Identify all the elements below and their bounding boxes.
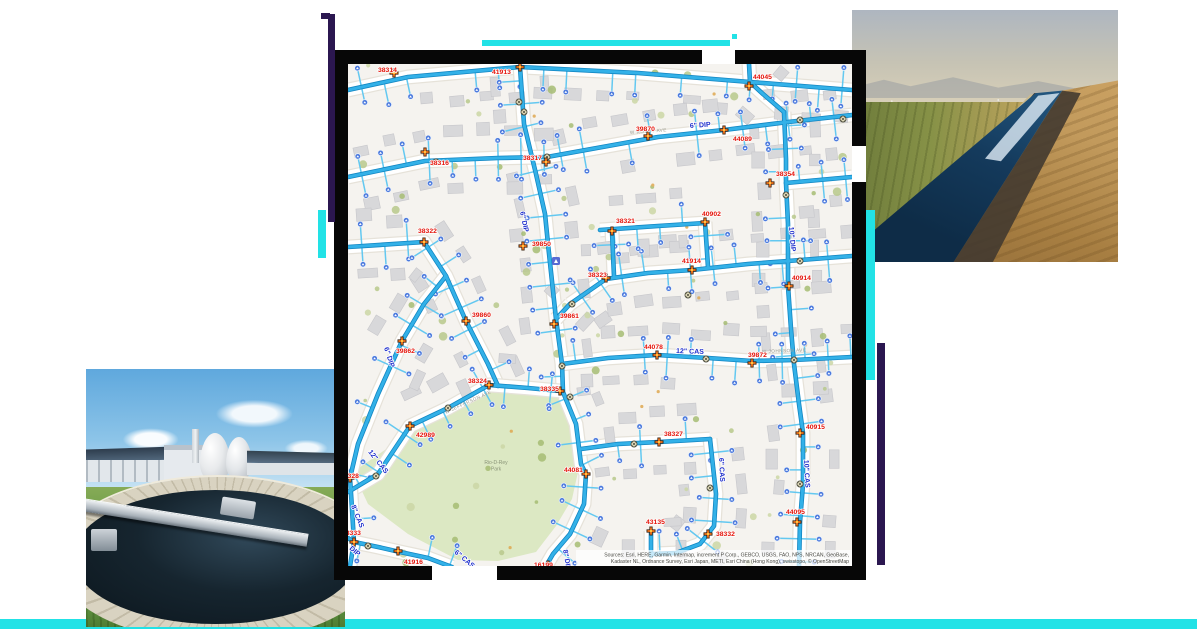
- meter-icon: [674, 531, 680, 537]
- accent-bar-left-tip: [321, 13, 330, 19]
- meter-icon: [756, 341, 762, 347]
- meter-icon: [577, 126, 583, 132]
- meter-icon: [538, 374, 544, 380]
- valve-icon: [559, 363, 565, 369]
- meter-icon: [439, 313, 445, 319]
- meter-icon: [696, 153, 702, 159]
- asset-id-label: 38332: [716, 531, 735, 538]
- valve-icon: [516, 99, 522, 105]
- asset-id-label: 38335: [540, 386, 559, 393]
- valve-icon: [365, 543, 371, 549]
- meter-icon: [404, 293, 410, 299]
- meter-icon: [815, 108, 821, 114]
- meter-icon: [417, 351, 423, 357]
- meter-icon: [792, 99, 798, 105]
- meter-icon: [454, 543, 460, 549]
- accent-bar-left-purple: [328, 14, 335, 222]
- meter-icon: [787, 136, 793, 142]
- meter-icon: [829, 97, 835, 103]
- meter-icon: [518, 132, 524, 138]
- meter-icon: [385, 187, 391, 193]
- clarifier-machinery: [91, 529, 117, 551]
- meter-icon: [425, 135, 431, 141]
- meter-icon: [399, 141, 405, 147]
- asset-id-label: 38317: [523, 155, 542, 162]
- meter-icon: [563, 89, 569, 95]
- valve-icon: [631, 441, 637, 447]
- meter-icon: [658, 240, 664, 246]
- meter-icon: [616, 251, 622, 257]
- meter-icon: [538, 120, 544, 126]
- asset-id-label: 39862: [396, 348, 415, 355]
- asset-id-label: 40902: [702, 211, 721, 218]
- meter-icon: [559, 498, 565, 504]
- meter-icon: [406, 371, 412, 377]
- meter-icon: [617, 458, 623, 464]
- meter-icon: [473, 176, 479, 182]
- meter-icon: [514, 173, 520, 179]
- meter-icon: [598, 485, 604, 491]
- plant-building-left: [86, 460, 169, 482]
- asset-id-label: 44081: [564, 467, 583, 474]
- meter-icon: [802, 122, 808, 128]
- meter-icon: [818, 159, 824, 165]
- valve-icon: [791, 357, 797, 363]
- asset-id-label: 41916: [404, 559, 423, 566]
- meter-icon: [746, 97, 752, 103]
- meter-icon: [801, 237, 807, 243]
- meter-icon: [546, 406, 552, 412]
- meter-icon: [682, 416, 688, 422]
- asset-id-label: 39860: [472, 312, 491, 319]
- meter-icon: [378, 150, 384, 156]
- meter-icon: [355, 154, 361, 160]
- meter-icon: [815, 373, 821, 379]
- accent-bar-top-cyan: [482, 40, 730, 46]
- meter-icon: [834, 136, 840, 142]
- meter-icon: [692, 108, 698, 114]
- meter-icon: [764, 238, 770, 244]
- meter-icon: [725, 232, 731, 238]
- meter-icon: [777, 424, 783, 430]
- meter-icon: [626, 241, 632, 247]
- meter-icon: [469, 366, 475, 372]
- asset-id-label: 38324: [468, 378, 487, 385]
- meter-icon: [847, 333, 852, 339]
- asset-id-label: 38322: [418, 228, 437, 235]
- asset-id-label: 40915: [806, 424, 825, 431]
- meter-icon: [656, 528, 662, 534]
- treatment-plant-photo: [86, 369, 345, 627]
- irrigation-canal-photo: [852, 10, 1118, 262]
- meter-icon: [763, 216, 769, 222]
- meter-icon: [360, 459, 366, 465]
- meter-icon: [811, 351, 817, 357]
- meter-icon: [643, 369, 649, 375]
- meter-icon: [799, 145, 805, 151]
- pipe-size-label: 6" DIP: [690, 122, 712, 130]
- meter-icon: [362, 100, 368, 106]
- meter-icon: [450, 173, 456, 179]
- meter-icon: [598, 516, 604, 522]
- asset-id-label: 39872: [748, 352, 767, 359]
- meter-icon: [824, 239, 830, 245]
- meter-icon: [815, 514, 821, 520]
- meter-icon: [354, 558, 360, 564]
- meter-icon: [438, 236, 444, 242]
- meter-icon: [542, 172, 548, 178]
- valve-icon: [521, 109, 527, 115]
- meter-icon: [527, 285, 533, 291]
- meter-icon: [845, 197, 851, 203]
- meter-icon: [666, 335, 672, 341]
- meter-icon: [540, 87, 546, 93]
- pipe-size-label: 12" CAS: [676, 348, 704, 356]
- plant-stack: [192, 429, 199, 463]
- map-attribution: Sources: Esri, HERE, Garmin, Intermap, i…: [576, 550, 852, 566]
- meter-icon: [587, 536, 593, 542]
- valve-icon: [783, 192, 789, 198]
- meter-icon: [590, 310, 596, 316]
- meter-icon: [524, 238, 530, 244]
- meter-icon: [526, 262, 532, 268]
- meter-icon: [358, 221, 364, 227]
- meter-icon: [355, 65, 361, 71]
- pipe-size-label: 10" CAS: [802, 460, 810, 488]
- meter-icon: [553, 164, 559, 170]
- meter-icon: [498, 103, 504, 109]
- meter-icon: [563, 211, 569, 217]
- meter-icon: [555, 442, 561, 448]
- meter-icon: [408, 94, 414, 100]
- meter-icon: [738, 109, 744, 115]
- meter-icon: [421, 274, 427, 280]
- meter-icon: [383, 265, 389, 271]
- meter-icon: [826, 371, 832, 377]
- meter-icon: [841, 157, 847, 163]
- meter-icon: [584, 387, 590, 393]
- meter-icon: [757, 378, 763, 384]
- meter-icon: [554, 133, 560, 139]
- accent-bar-right-cyan: [866, 210, 875, 380]
- valve-icon: [569, 301, 575, 307]
- frame-break-top: [702, 50, 735, 64]
- meter-icon: [622, 292, 628, 298]
- water-network-map: Rio-D-ReyParkW JEFFERSON AVEW JOHNSON AV…: [348, 64, 852, 566]
- asset-id-label: 38321: [616, 218, 635, 225]
- meter-icon: [729, 497, 735, 503]
- meter-icon: [765, 285, 771, 291]
- meter-icon: [591, 243, 597, 249]
- frame-break-right: [852, 146, 866, 182]
- meter-icon: [479, 296, 485, 302]
- asset-id-label: 39870: [636, 126, 655, 133]
- asset-id-label: 39850: [532, 241, 551, 248]
- asset-id-label: 39861: [560, 313, 579, 320]
- meter-icon: [572, 325, 578, 331]
- valve-icon: [707, 485, 713, 491]
- meter-icon: [519, 176, 525, 182]
- frame-break-bottom: [432, 566, 497, 580]
- meter-icon: [527, 366, 533, 372]
- valve-icon: [797, 481, 803, 487]
- asset-id-label: 38333: [348, 530, 361, 537]
- meter-icon: [464, 277, 470, 283]
- meter-icon: [780, 380, 786, 386]
- meter-icon: [372, 356, 378, 362]
- meter-icon: [456, 252, 462, 258]
- meter-icon: [816, 536, 822, 542]
- meter-icon: [802, 341, 808, 347]
- meter-icon: [809, 305, 815, 311]
- meter-icon: [409, 255, 415, 261]
- meter-icon: [407, 462, 413, 468]
- meter-icon: [729, 448, 735, 454]
- meter-icon: [635, 246, 641, 252]
- meter-icon: [561, 167, 567, 173]
- meter-icon: [774, 536, 780, 542]
- meter-icon: [506, 359, 512, 365]
- meter-icon: [535, 330, 541, 336]
- meter-icon: [383, 419, 389, 425]
- meter-icon: [688, 452, 694, 458]
- park-label: Park: [491, 467, 502, 473]
- park-label: Rio-D-Rey: [484, 460, 508, 466]
- asset-id-label: 38327: [664, 431, 683, 438]
- plant-building-right: [247, 463, 345, 475]
- map-canvas: Rio-D-ReyParkW JEFFERSON AVEW JOHNSON AV…: [348, 64, 852, 566]
- valve-icon: [685, 292, 691, 298]
- meter-icon: [709, 375, 715, 381]
- meter-icon: [732, 380, 738, 386]
- meter-icon: [599, 453, 605, 459]
- meter-icon: [765, 141, 771, 147]
- meter-icon: [632, 92, 638, 98]
- meter-icon: [610, 298, 616, 304]
- meter-icon: [462, 355, 468, 361]
- meter-icon: [686, 244, 692, 250]
- meter-icon: [530, 307, 536, 313]
- meter-icon: [796, 164, 802, 170]
- meter-icon: [609, 91, 615, 97]
- meter-icon: [639, 463, 645, 469]
- meter-icon: [449, 336, 455, 342]
- meter-icon: [518, 195, 524, 201]
- meter-icon: [795, 65, 801, 71]
- meter-icon: [564, 234, 570, 240]
- meter-icon: [641, 336, 647, 342]
- asset-id-label: 38354: [776, 171, 795, 178]
- meter-icon: [427, 181, 433, 187]
- meter-icon: [715, 111, 721, 117]
- poi-icon: [552, 257, 560, 265]
- meter-icon: [539, 100, 545, 106]
- meter-icon: [430, 535, 436, 541]
- meter-icon: [773, 331, 779, 337]
- asset-id-label: 40914: [792, 275, 811, 282]
- meter-icon: [816, 396, 822, 402]
- meter-icon: [784, 467, 790, 473]
- valve-icon: [840, 116, 846, 122]
- meter-icon: [593, 438, 599, 444]
- meter-icon: [841, 65, 847, 71]
- pipe-size-label: 6" CAS: [717, 458, 725, 483]
- meter-icon: [689, 337, 695, 343]
- meter-icon: [822, 198, 828, 204]
- asset-id-label: 38314: [378, 67, 397, 74]
- accent-dot-top-cyan: [732, 34, 737, 39]
- asset-id-label: 43135: [646, 519, 665, 526]
- meter-icon: [363, 193, 369, 199]
- meter-icon: [708, 245, 714, 251]
- meter-icon: [556, 187, 562, 193]
- meter-icon: [550, 519, 556, 525]
- meter-icon: [474, 87, 480, 93]
- meter-icon: [561, 483, 567, 489]
- meter-icon: [689, 475, 695, 481]
- asset-id-label: 41914: [682, 258, 701, 265]
- map-frame: Rio-D-ReyParkW JEFFERSON AVEW JOHNSON AV…: [334, 50, 866, 580]
- meter-icon: [712, 281, 718, 287]
- meter-icon: [663, 375, 669, 381]
- meter-icon: [570, 338, 576, 344]
- meter-icon: [783, 100, 789, 106]
- asset-id-label: 38328: [348, 473, 359, 480]
- asset-id-label: 44089: [733, 136, 752, 143]
- meter-icon: [766, 147, 772, 153]
- asset-id-label: 41913: [492, 69, 511, 76]
- asset-id-label: 16199: [534, 562, 553, 566]
- meter-icon: [732, 520, 738, 526]
- meter-icon: [824, 338, 830, 344]
- meter-icon: [815, 444, 821, 450]
- hero-composition: Rio-D-ReyParkW JEFFERSON AVEW JOHNSON AV…: [0, 0, 1200, 630]
- meter-icon: [807, 101, 813, 107]
- meter-icon: [724, 93, 730, 99]
- valve-icon: [567, 394, 573, 400]
- meter-icon: [386, 102, 392, 108]
- meter-icon: [489, 402, 495, 408]
- meter-icon: [496, 80, 502, 86]
- meter-icon: [468, 411, 474, 417]
- meter-icon: [495, 138, 501, 144]
- meter-icon: [541, 139, 547, 145]
- meter-icon: [447, 424, 453, 430]
- meter-icon: [496, 177, 502, 183]
- meter-icon: [818, 492, 824, 498]
- meter-icon: [827, 278, 833, 284]
- meter-icon: [779, 341, 785, 347]
- meter-icon: [393, 312, 399, 318]
- meter-icon: [679, 201, 685, 207]
- meter-icon: [688, 234, 694, 240]
- meter-icon: [417, 442, 423, 448]
- attribution-text: Sources: Esri, HERE, Garmin, Intermap, i…: [604, 553, 849, 559]
- meter-icon: [497, 85, 503, 91]
- meter-icon: [355, 399, 361, 405]
- meter-icon: [697, 495, 703, 501]
- meter-icon: [403, 218, 409, 224]
- meter-icon: [427, 333, 433, 339]
- accent-bar-right-purple: [877, 343, 885, 565]
- meter-icon: [482, 319, 488, 325]
- asset-id-label: 38323: [588, 272, 607, 279]
- asset-id-label: 42989: [416, 432, 435, 439]
- valve-icon: [797, 258, 803, 264]
- meter-icon: [584, 168, 590, 174]
- meter-icon: [666, 286, 672, 292]
- meter-icon: [777, 401, 783, 407]
- meter-icon: [677, 93, 683, 99]
- attribution-text: Kadaster NL, Ordnance Survey, Esri Japan…: [611, 558, 849, 565]
- meter-icon: [778, 511, 784, 517]
- valve-icon: [373, 473, 379, 479]
- meter-icon: [567, 277, 573, 283]
- meter-icon: [360, 262, 366, 268]
- meter-icon: [629, 160, 635, 166]
- meter-icon: [500, 129, 506, 135]
- accent-bar-left-cyan: [318, 210, 326, 258]
- meter-icon: [731, 242, 737, 248]
- meter-icon: [808, 238, 814, 244]
- meter-icon: [685, 526, 691, 532]
- valve-icon: [797, 117, 803, 123]
- asset-id-label: 44078: [644, 344, 663, 351]
- meter-icon: [637, 424, 643, 430]
- meter-icon: [644, 113, 650, 119]
- meter-icon: [758, 280, 764, 286]
- meter-icon: [763, 169, 769, 175]
- asset-id-label: 44045: [753, 74, 772, 81]
- meter-icon: [550, 371, 556, 377]
- meter-icon: [689, 517, 695, 523]
- valve-icon: [703, 356, 709, 362]
- meter-icon: [838, 103, 844, 109]
- meter-icon: [371, 515, 377, 521]
- meter-icon: [586, 411, 592, 417]
- meter-icon: [501, 404, 507, 410]
- asset-id-label: 38316: [430, 160, 449, 167]
- meter-icon: [784, 489, 790, 495]
- meter-icon: [742, 145, 748, 151]
- asset-id-label: 44095: [786, 509, 805, 516]
